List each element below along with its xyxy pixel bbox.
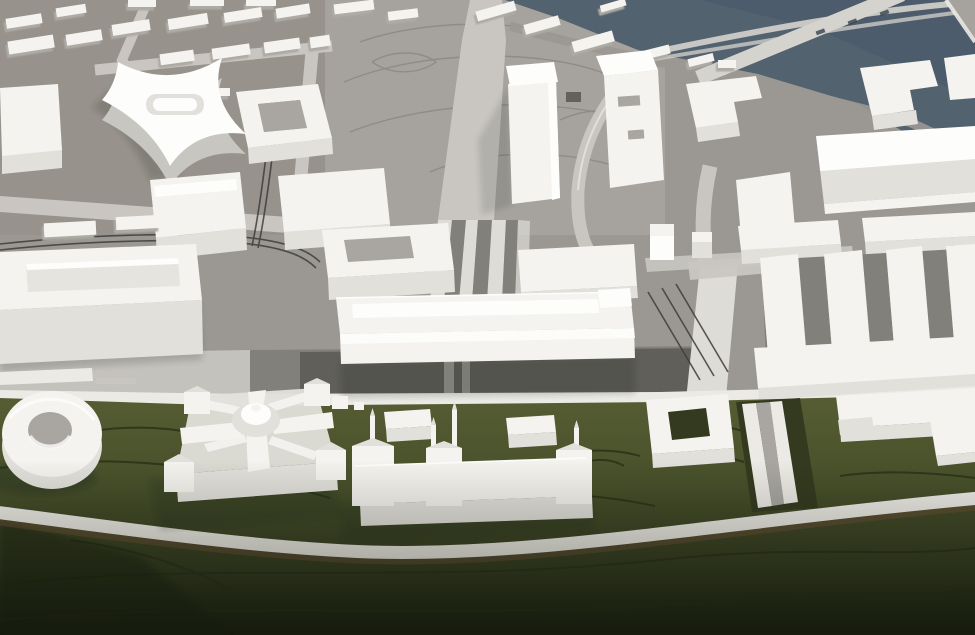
model-photo [0, 0, 975, 635]
scene-canvas [0, 0, 975, 635]
palace-dome [232, 403, 280, 437]
slab-building-west-upper [0, 84, 62, 174]
photo-vignette [0, 440, 975, 635]
comb-building-complex [754, 244, 975, 400]
long-slab-building [336, 288, 635, 398]
large-slab-building-west [0, 244, 203, 372]
garden-pavilion-1 [384, 409, 433, 442]
hip-roof-building [816, 126, 975, 214]
courtyard-building-center [322, 223, 455, 300]
courtyard-podium-north [236, 84, 333, 164]
